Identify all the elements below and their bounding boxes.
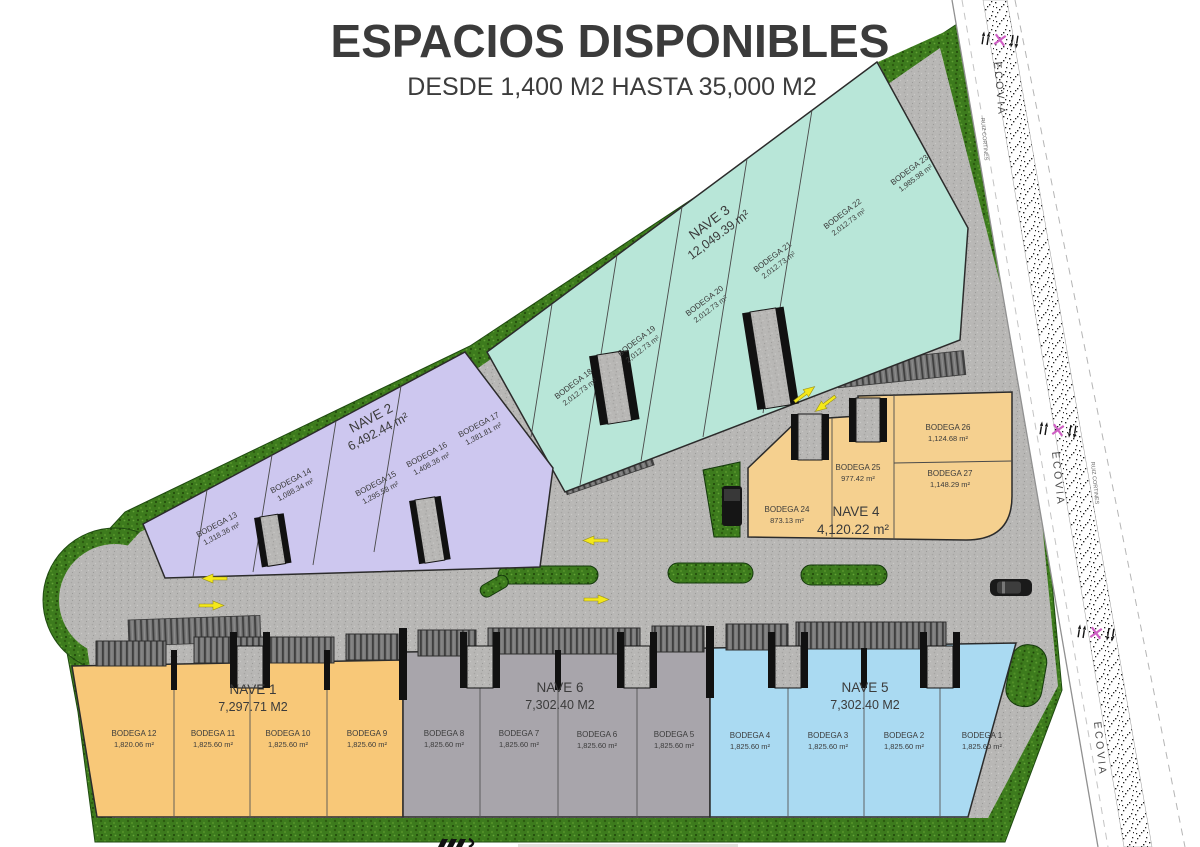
svg-text:BODEGA 7: BODEGA 7	[499, 729, 540, 738]
svg-text:1,825.60 m²: 1,825.60 m²	[808, 742, 849, 751]
svg-text:BODEGA 27: BODEGA 27	[928, 469, 973, 478]
svg-text:873.13 m²: 873.13 m²	[770, 516, 804, 525]
svg-text:BODEGA 3: BODEGA 3	[808, 731, 849, 740]
svg-text:BODEGA 25: BODEGA 25	[836, 463, 881, 472]
svg-text:1,825.60 m²: 1,825.60 m²	[499, 740, 540, 749]
site-plan-flyer: ECOVIA ECOVIA ECOVIA RUIZ CORTINES RUIZ …	[0, 0, 1200, 847]
svg-text:BODEGA 2: BODEGA 2	[884, 731, 925, 740]
svg-text:BODEGA 1: BODEGA 1	[962, 731, 1003, 740]
site-plan: ECOVIA ECOVIA ECOVIA RUIZ CORTINES RUIZ …	[0, 0, 1200, 847]
nave-5-name: NAVE 5	[841, 680, 888, 695]
svg-text:1,148.29 m²: 1,148.29 m²	[930, 480, 971, 489]
svg-text:BODEGA 8: BODEGA 8	[424, 729, 465, 738]
nave-6-name: NAVE 6	[536, 680, 583, 695]
svg-text:1,825.60 m²: 1,825.60 m²	[347, 740, 388, 749]
svg-text:1,825.60 m²: 1,825.60 m²	[884, 742, 925, 751]
nave-5-area: 7,302.40 M2	[830, 698, 900, 712]
svg-text:BODEGA 11: BODEGA 11	[191, 729, 236, 738]
svg-text:1,825.60 m²: 1,825.60 m²	[577, 741, 618, 750]
truck-icon	[722, 486, 742, 526]
svg-text:1,124.68 m²: 1,124.68 m²	[928, 434, 969, 443]
nave-6-area: 7,302.40 M2	[525, 698, 595, 712]
svg-text:BODEGA 6: BODEGA 6	[577, 730, 618, 739]
svg-text:1,825.60 m²: 1,825.60 m²	[424, 740, 465, 749]
car-icon	[990, 579, 1032, 596]
svg-text:977.42 m²: 977.42 m²	[841, 474, 875, 483]
svg-text:1,825.60 m²: 1,825.60 m²	[268, 740, 309, 749]
svg-text:BODEGA 4: BODEGA 4	[730, 731, 771, 740]
svg-text:BODEGA 24: BODEGA 24	[765, 505, 810, 514]
svg-text:1,825.60 m²: 1,825.60 m²	[654, 741, 695, 750]
svg-text:BODEGA 5: BODEGA 5	[654, 730, 695, 739]
nave-4-name: NAVE 4	[832, 504, 880, 519]
nave-4-area: 4,120.22 m²	[817, 522, 890, 537]
nave-1-name: NAVE 1	[229, 682, 276, 697]
svg-text:1,820.06 m²: 1,820.06 m²	[114, 740, 155, 749]
svg-text:1,825.60 m²: 1,825.60 m²	[962, 742, 1003, 751]
page-subtitle: DESDE 1,400 M2 HASTA 35,000 M2	[407, 73, 816, 101]
svg-text:BODEGA 12: BODEGA 12	[112, 729, 157, 738]
svg-text:BODEGA 9: BODEGA 9	[347, 729, 388, 738]
nave-1-area: 7,297.71 M2	[218, 700, 288, 714]
svg-text:1,825.60 m²: 1,825.60 m²	[730, 742, 771, 751]
svg-text:BODEGA 10: BODEGA 10	[266, 729, 311, 738]
svg-text:1,825.60 m²: 1,825.60 m²	[193, 740, 234, 749]
svg-text:BODEGA 26: BODEGA 26	[926, 423, 971, 432]
page-title: ESPACIOS DISPONIBLES	[331, 15, 890, 67]
